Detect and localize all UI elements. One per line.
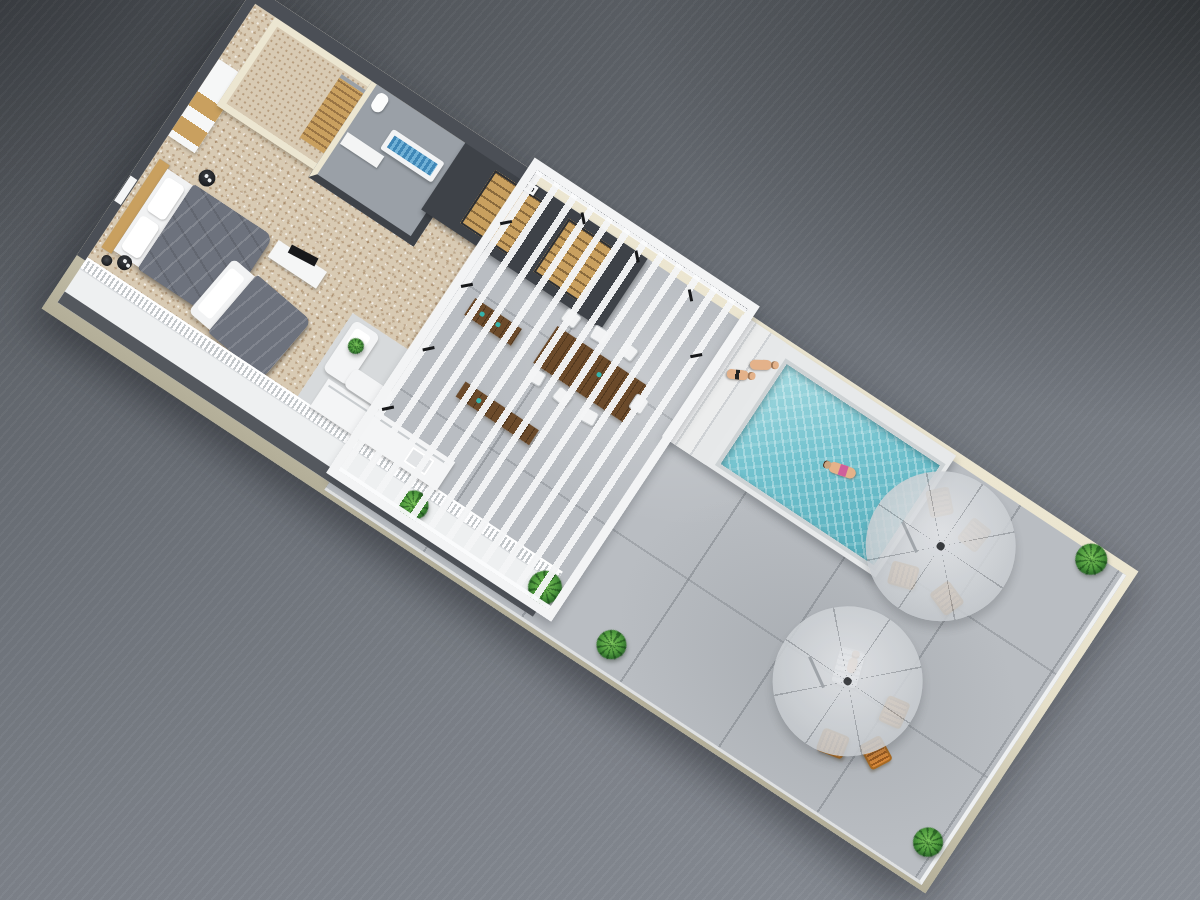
bathtub <box>380 129 445 183</box>
render-canvas: { "scene": { "type": "isometric-3d-floor… <box>0 0 1200 900</box>
vanity-counter <box>340 132 384 168</box>
rooftop-floorplan <box>42 0 1139 893</box>
bathtub-water <box>387 136 438 176</box>
toilet <box>369 91 391 115</box>
person-figure <box>750 360 772 371</box>
person-figure <box>726 369 749 381</box>
